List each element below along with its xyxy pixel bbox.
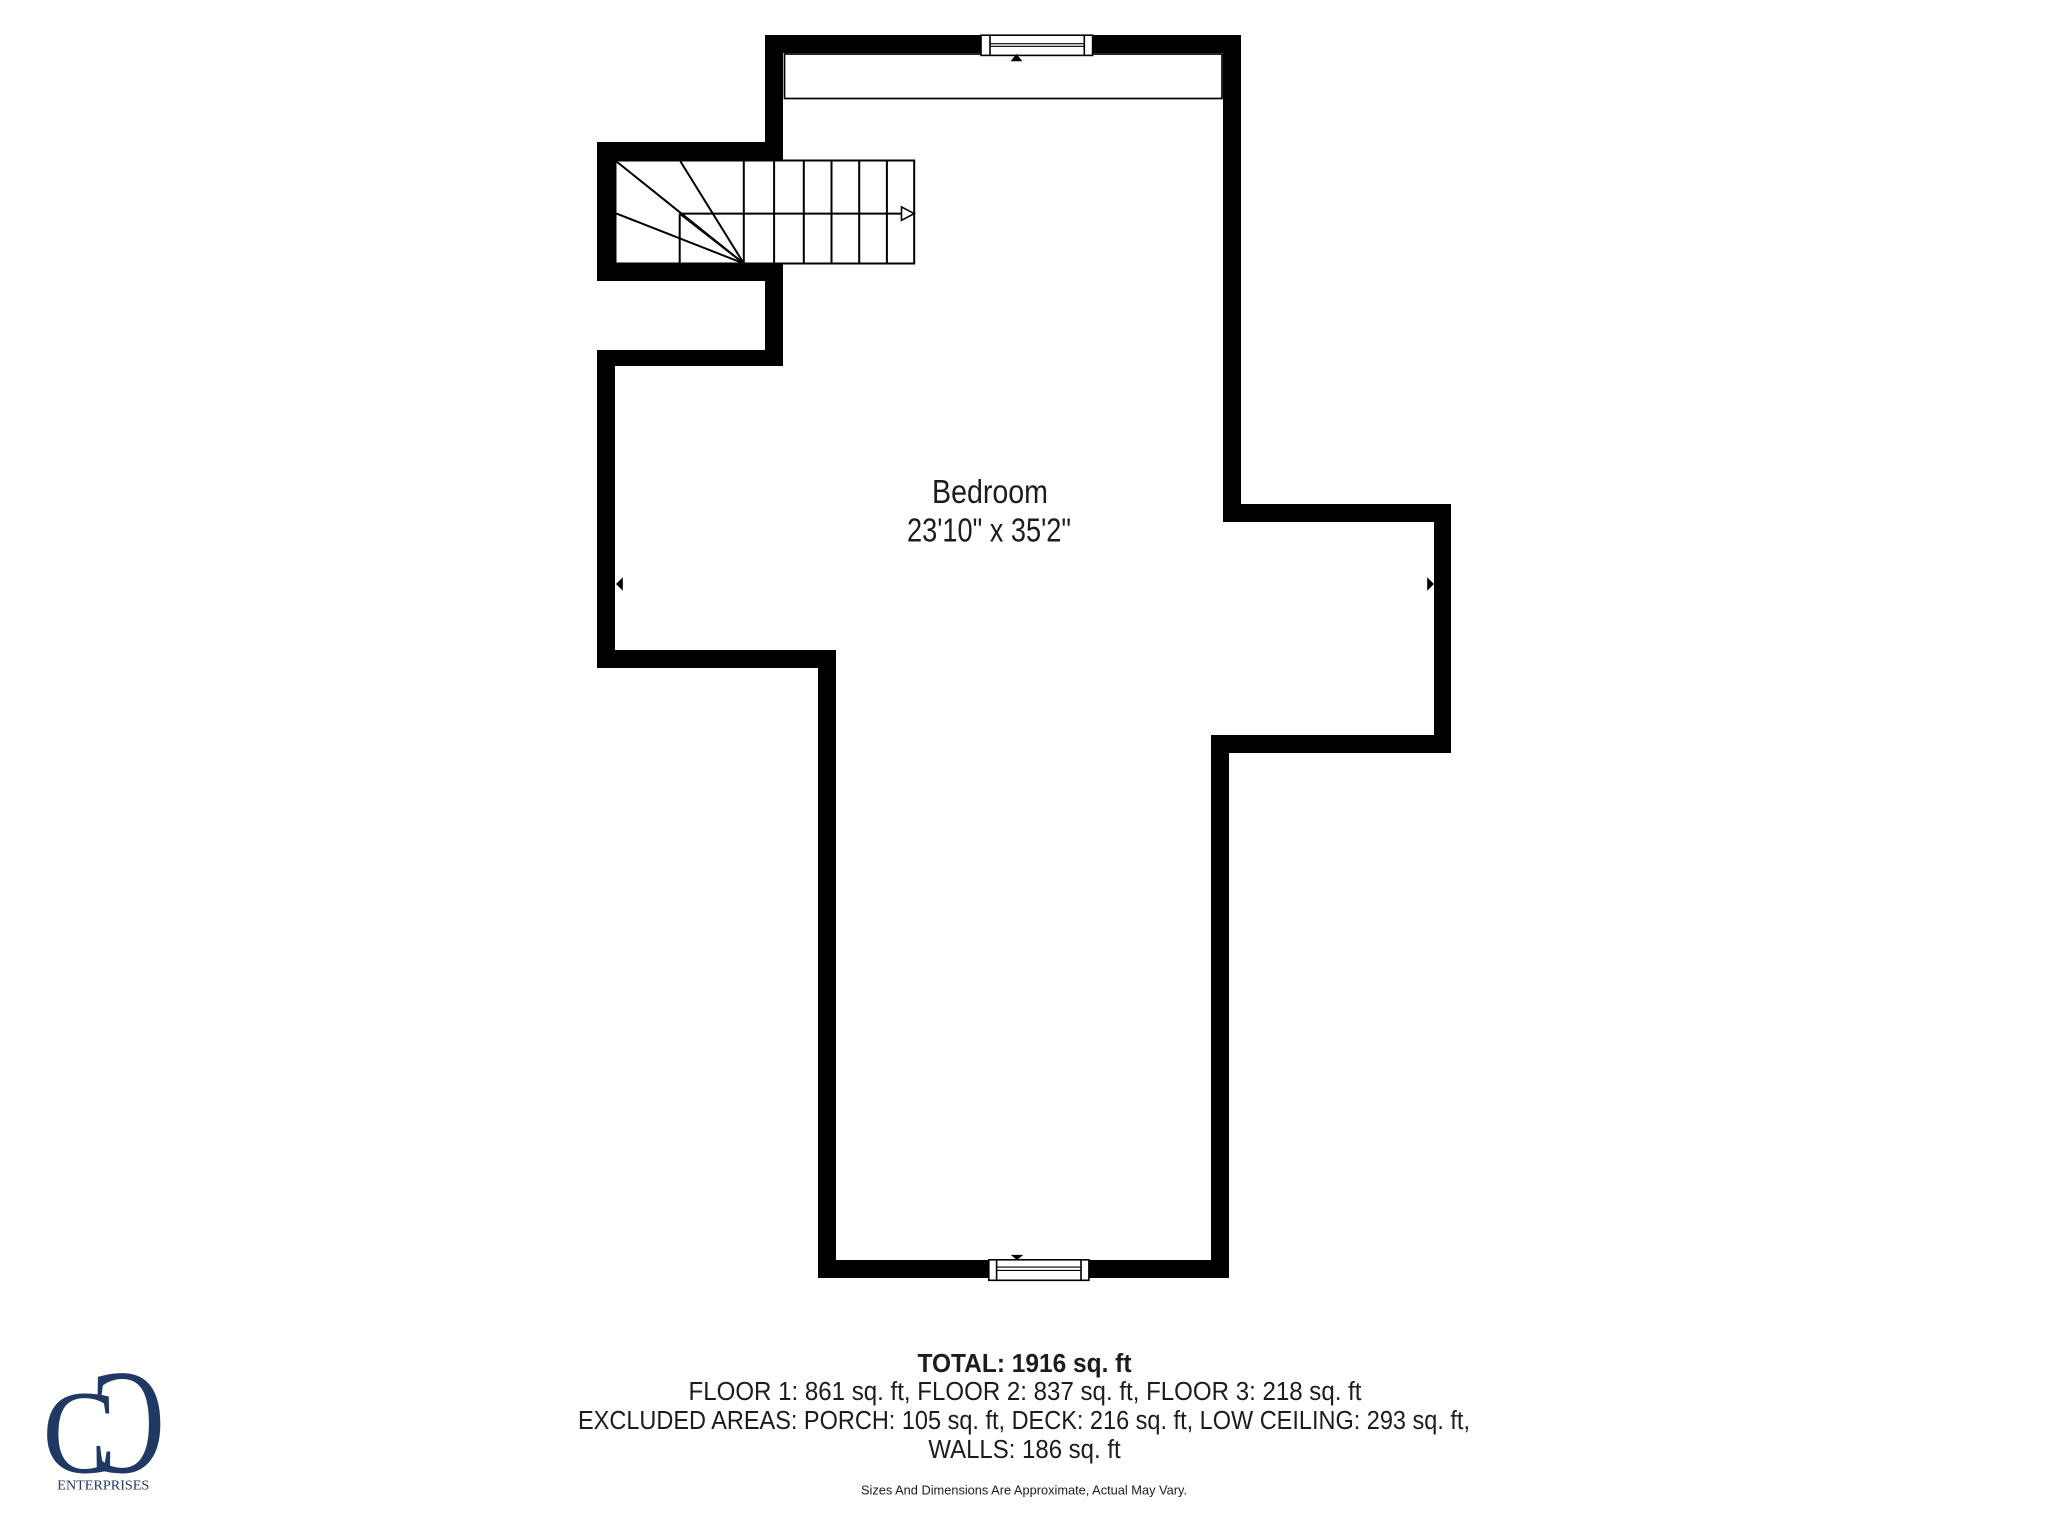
svg-text:23'10" x 35'2": 23'10" x 35'2" [907,511,1071,548]
svg-text:EXCLUDED AREAS: PORCH: 105 sq.: EXCLUDED AREAS: PORCH: 105 sq. ft, DECK:… [578,1407,1470,1435]
svg-text:Bedroom: Bedroom [932,473,1048,510]
svg-text:WALLS: 186 sq. ft: WALLS: 186 sq. ft [928,1436,1120,1464]
svg-text:ENTERPRISES: ENTERPRISES [57,1479,149,1494]
svg-text:TOTAL: 1916 sq. ft: TOTAL: 1916 sq. ft [918,1350,1132,1378]
svg-text:Sizes And Dimensions Are Appro: Sizes And Dimensions Are Approximate, Ac… [861,1482,1187,1497]
svg-text:FLOOR 1: 861 sq. ft, FLOOR 2:: FLOOR 1: 861 sq. ft, FLOOR 2: 837 sq. ft… [689,1378,1362,1406]
